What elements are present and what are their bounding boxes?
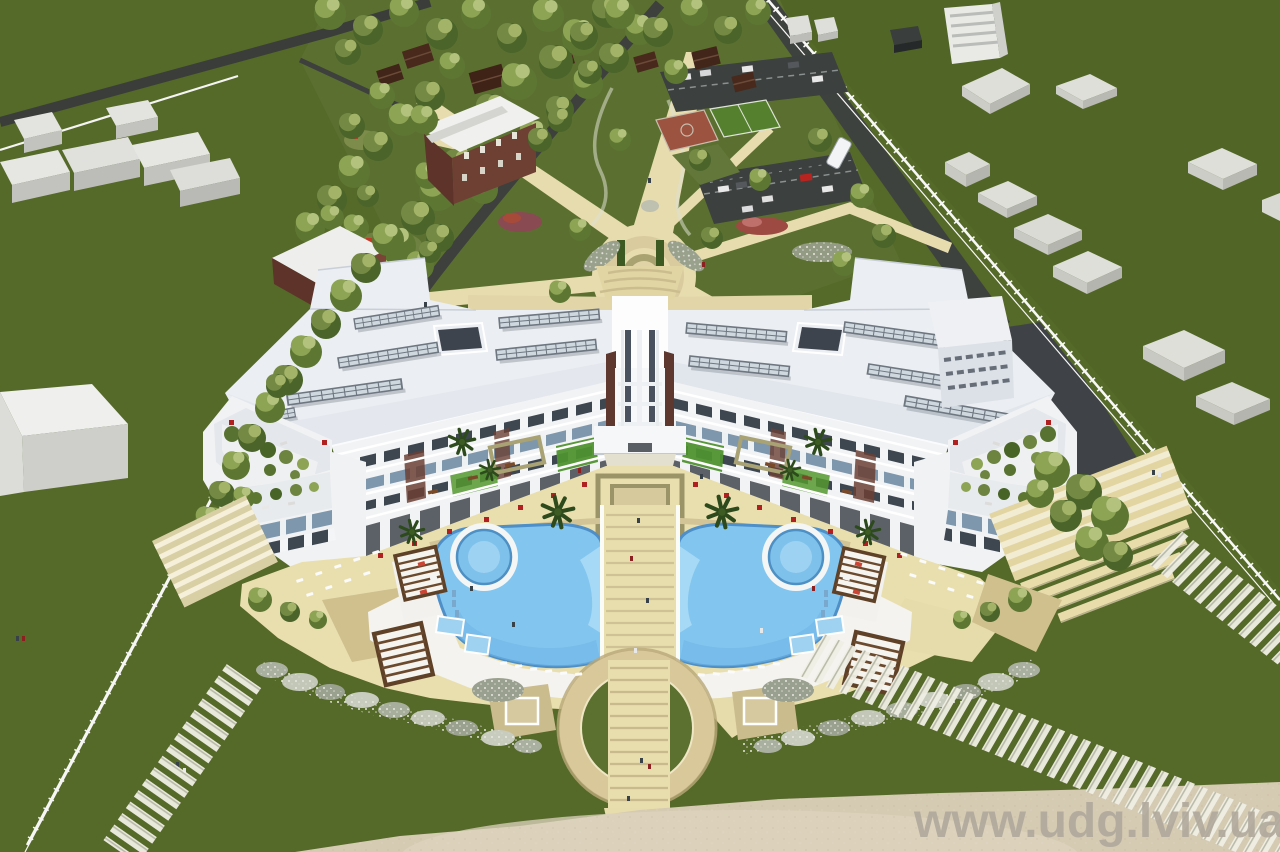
svg-text:www.udg.lviv.ua: www.udg.lviv.ua	[913, 795, 1280, 848]
